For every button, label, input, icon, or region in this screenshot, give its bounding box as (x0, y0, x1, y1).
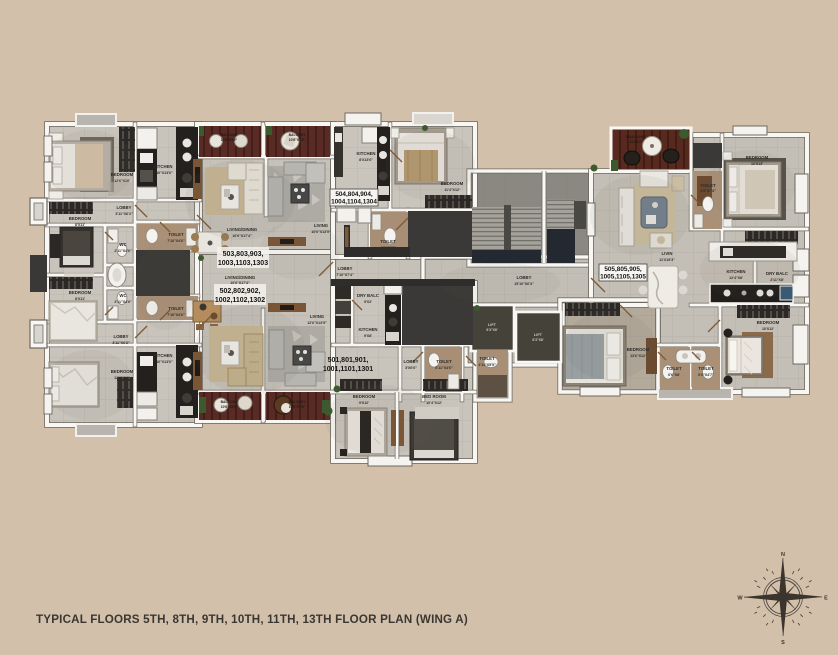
svg-text:WC: WC (119, 242, 126, 247)
svg-text:6'3"X8': 6'3"X8' (486, 328, 497, 332)
svg-text:LOBBY: LOBBY (337, 266, 352, 271)
svg-text:LIVING/DINING: LIVING/DINING (225, 275, 256, 280)
svg-text:6'11"X4'6": 6'11"X4'6" (435, 366, 453, 370)
svg-text:1001,1101,1301: 1001,1101,1301 (323, 366, 373, 373)
svg-text:11'4"X12': 11'4"X12' (444, 188, 460, 192)
svg-text:4'5"X7'4": 4'5"X7'4" (700, 189, 716, 193)
svg-text:502,802,902,: 502,802,902, (220, 288, 261, 295)
svg-text:10'6"X13'5": 10'6"X13'5" (311, 230, 331, 234)
svg-text:1004,1104,1304: 1004,1104,1304 (331, 199, 377, 206)
svg-text:LIVING: LIVING (310, 314, 325, 319)
svg-text:9'X12': 9'X12' (359, 401, 369, 405)
svg-text:TOILET: TOILET (700, 183, 716, 188)
svg-text:15'10"X6'3": 15'10"X6'3" (514, 282, 534, 286)
svg-text:4'5"X6'8": 4'5"X6'8" (380, 246, 396, 250)
svg-text:10'6"X17'4": 10'6"X17'4" (232, 234, 252, 238)
svg-text:KITCHEN: KITCHEN (153, 353, 172, 358)
svg-text:LIVING/DINING: LIVING/DINING (227, 227, 258, 232)
svg-text:BALCONY: BALCONY (289, 133, 307, 137)
svg-text:TYPICAL FLOORS 5TH, 8TH, 9TH,: TYPICAL FLOORS 5TH, 8TH, 9TH, 10TH, 11TH… (36, 613, 468, 626)
svg-text:10'6"X7'6": 10'6"X7'6" (289, 138, 306, 142)
svg-text:1002,1102,1302: 1002,1102,1302 (215, 297, 265, 304)
svg-text:504,804,904,: 504,804,904, (335, 191, 373, 198)
svg-text:TOILET: TOILET (168, 232, 184, 237)
svg-text:BED ROOM: BED ROOM (422, 394, 446, 399)
svg-text:BALCONY: BALCONY (221, 400, 239, 404)
svg-text:BEDROOM: BEDROOM (111, 172, 134, 177)
svg-text:7'10"X7'4": 7'10"X7'4" (336, 273, 354, 277)
svg-text:TOILET: TOILET (380, 239, 396, 244)
svg-text:12'6"X13'5": 12'6"X13'5" (307, 321, 327, 325)
svg-text:S: S (781, 640, 785, 646)
svg-text:N: N (781, 552, 785, 558)
svg-text:TOILET: TOILET (698, 366, 714, 371)
svg-text:KITCHEN: KITCHEN (153, 164, 172, 169)
svg-text:503,803,903,: 503,803,903, (223, 251, 264, 258)
svg-text:7'10"X4'6": 7'10"X4'6" (167, 313, 185, 317)
svg-text:13'6"X12': 13'6"X12' (630, 354, 646, 358)
svg-text:BEDROOM: BEDROOM (353, 394, 376, 399)
svg-text:BEDROOM: BEDROOM (441, 181, 464, 186)
svg-text:W: W (737, 596, 743, 602)
svg-text:DRY BALC: DRY BALC (357, 293, 379, 298)
svg-text:10'6"X7'6": 10'6"X7'6" (289, 405, 306, 409)
svg-text:6'6"X4'7": 6'6"X4'7" (698, 373, 714, 377)
svg-text:9'X8': 9'X8' (364, 334, 372, 338)
svg-text:LIFT: LIFT (534, 333, 543, 337)
svg-text:TOILET: TOILET (666, 366, 682, 371)
svg-text:10'X13': 10'X13' (751, 162, 763, 166)
svg-text:TOILET: TOILET (168, 306, 184, 311)
svg-text:3'X6'6": 3'X6'6" (405, 366, 417, 370)
svg-text:DRY BALC: DRY BALC (766, 271, 788, 276)
svg-text:3'11"X6'2": 3'11"X6'2" (115, 212, 133, 216)
svg-text:BEDROOM: BEDROOM (69, 216, 92, 221)
svg-text:8'X13'6": 8'X13'6" (359, 158, 373, 162)
svg-text:505,805,905,: 505,805,905, (604, 266, 642, 273)
svg-text:12'6"X10': 12'6"X10' (114, 179, 130, 183)
svg-text:LIFT: LIFT (488, 323, 497, 327)
svg-text:9'X2': 9'X2' (364, 300, 372, 304)
svg-text:KITCHEN: KITCHEN (356, 151, 375, 156)
svg-text:501,801,901,: 501,801,901, (328, 357, 369, 364)
svg-text:6'6"X8': 6'6"X8' (668, 373, 680, 377)
svg-text:12'4"X8': 12'4"X8' (729, 276, 743, 280)
svg-text:10'X12': 10'X12' (762, 327, 774, 331)
svg-text:12'6"X10': 12'6"X10' (114, 376, 130, 380)
svg-text:11'X6'2": 11'X6'2" (630, 140, 643, 144)
svg-text:TOILET: TOILET (436, 359, 452, 364)
svg-text:7'10"X13'6": 7'10"X13'6" (153, 171, 173, 175)
svg-text:TOILET: TOILET (479, 356, 495, 361)
svg-text:BEDROOM: BEDROOM (627, 347, 650, 352)
svg-text:1005,1105,1305: 1005,1105,1305 (600, 274, 646, 281)
svg-text:LOBBY: LOBBY (113, 334, 128, 339)
svg-text:BALCONY: BALCONY (626, 134, 646, 139)
svg-text:LOBBY: LOBBY (516, 275, 531, 280)
svg-text:10'6"X5'6": 10'6"X5'6" (221, 138, 238, 142)
svg-text:1003,1103,1303: 1003,1103,1303 (218, 260, 268, 267)
svg-text:3'11"X6'2": 3'11"X6'2" (112, 341, 130, 345)
svg-text:BALCONY: BALCONY (221, 133, 239, 137)
svg-text:BEDROOM: BEDROOM (757, 320, 780, 325)
svg-text:BEDROOM: BEDROOM (746, 155, 769, 160)
svg-text:6'3"X8': 6'3"X8' (532, 338, 543, 342)
svg-text:7'10"X4'6": 7'10"X4'6" (167, 239, 185, 243)
svg-text:8'X11': 8'X11' (75, 297, 85, 301)
svg-text:2'11"X8': 2'11"X8' (770, 278, 784, 282)
svg-text:2'11"X4'6": 2'11"X4'6" (114, 300, 132, 304)
svg-text:E: E (824, 596, 828, 602)
svg-text:8'X11': 8'X11' (75, 223, 85, 227)
svg-text:BALCONY: BALCONY (289, 400, 307, 404)
svg-text:KITCHEN: KITCHEN (726, 269, 745, 274)
svg-text:4'11"X5'5": 4'11"X5'5" (478, 363, 496, 367)
svg-text:LIVIN: LIVIN (662, 251, 673, 256)
svg-text:LOBBY: LOBBY (116, 205, 131, 210)
svg-text:LIVING: LIVING (314, 223, 329, 228)
svg-text:2'11"X4'6": 2'11"X4'6" (114, 249, 132, 253)
svg-text:7'10"X13'6": 7'10"X13'6" (153, 360, 173, 364)
svg-text:LOBBY: LOBBY (403, 359, 418, 364)
svg-text:BEDROOM: BEDROOM (69, 290, 92, 295)
svg-text:BEDROOM: BEDROOM (111, 369, 134, 374)
svg-text:WC: WC (119, 293, 126, 298)
svg-text:10'4"X12': 10'4"X12' (426, 401, 442, 405)
svg-text:10'6"X5'6": 10'6"X5'6" (221, 405, 238, 409)
svg-text:KITCHEN: KITCHEN (358, 327, 377, 332)
svg-text:11'X19'3": 11'X19'3" (659, 258, 675, 262)
